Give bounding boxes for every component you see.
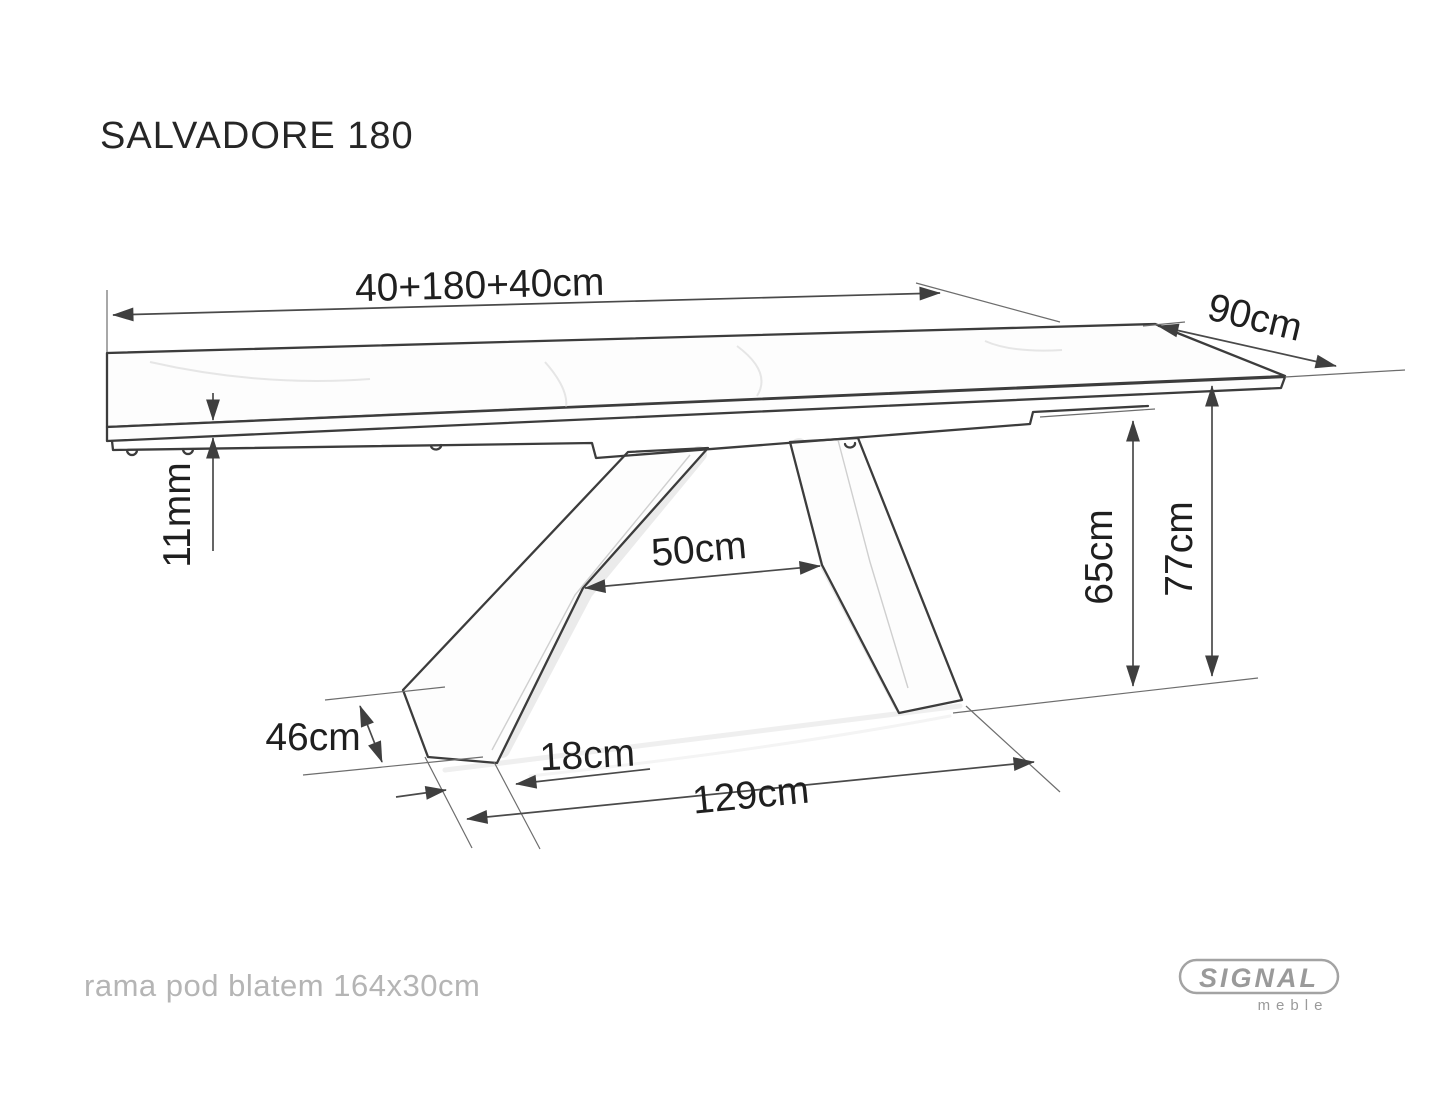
ext-foot-bottom <box>303 757 483 775</box>
dim-label-total-length: 40+180+40cm <box>354 261 604 311</box>
dimension-drawing: SALVADORE 180 40+180+40cm 90cm 11mm 50cm… <box>0 0 1445 1105</box>
ext-floor <box>953 678 1258 713</box>
underframe-note: rama pod blatem 164x30cm <box>84 968 480 1003</box>
dim-label-underframe-height: 65cm <box>1078 509 1121 604</box>
ext-depth-bottom <box>1285 370 1405 377</box>
dim-line-foot-length <box>360 706 382 762</box>
dim-label-foot-width: 18cm <box>539 732 636 780</box>
product-title: SALVADORE 180 <box>100 115 414 157</box>
left-leg <box>403 448 708 763</box>
logo-brand-text: SIGNAL <box>1199 963 1319 993</box>
dim-label-total-height: 77cm <box>1158 501 1201 596</box>
dim-label-thickness: 11mm <box>156 462 199 567</box>
dim-line-foot-width-left <box>396 790 446 797</box>
ext-total-right <box>916 283 1060 322</box>
dim-label-leg-gap: 50cm <box>650 524 749 575</box>
logo-sub-text: meble <box>1258 997 1329 1014</box>
dim-label-foot-length: 46cm <box>265 716 360 759</box>
technical-drawing-page: SALVADORE 180 40+180+40cm 90cm 11mm 50cm… <box>0 0 1445 1105</box>
dim-label-base-length: 129cm <box>690 769 811 823</box>
ext-base-right <box>966 706 1060 792</box>
brand-logo: SIGNAL meble <box>1180 960 1338 1014</box>
